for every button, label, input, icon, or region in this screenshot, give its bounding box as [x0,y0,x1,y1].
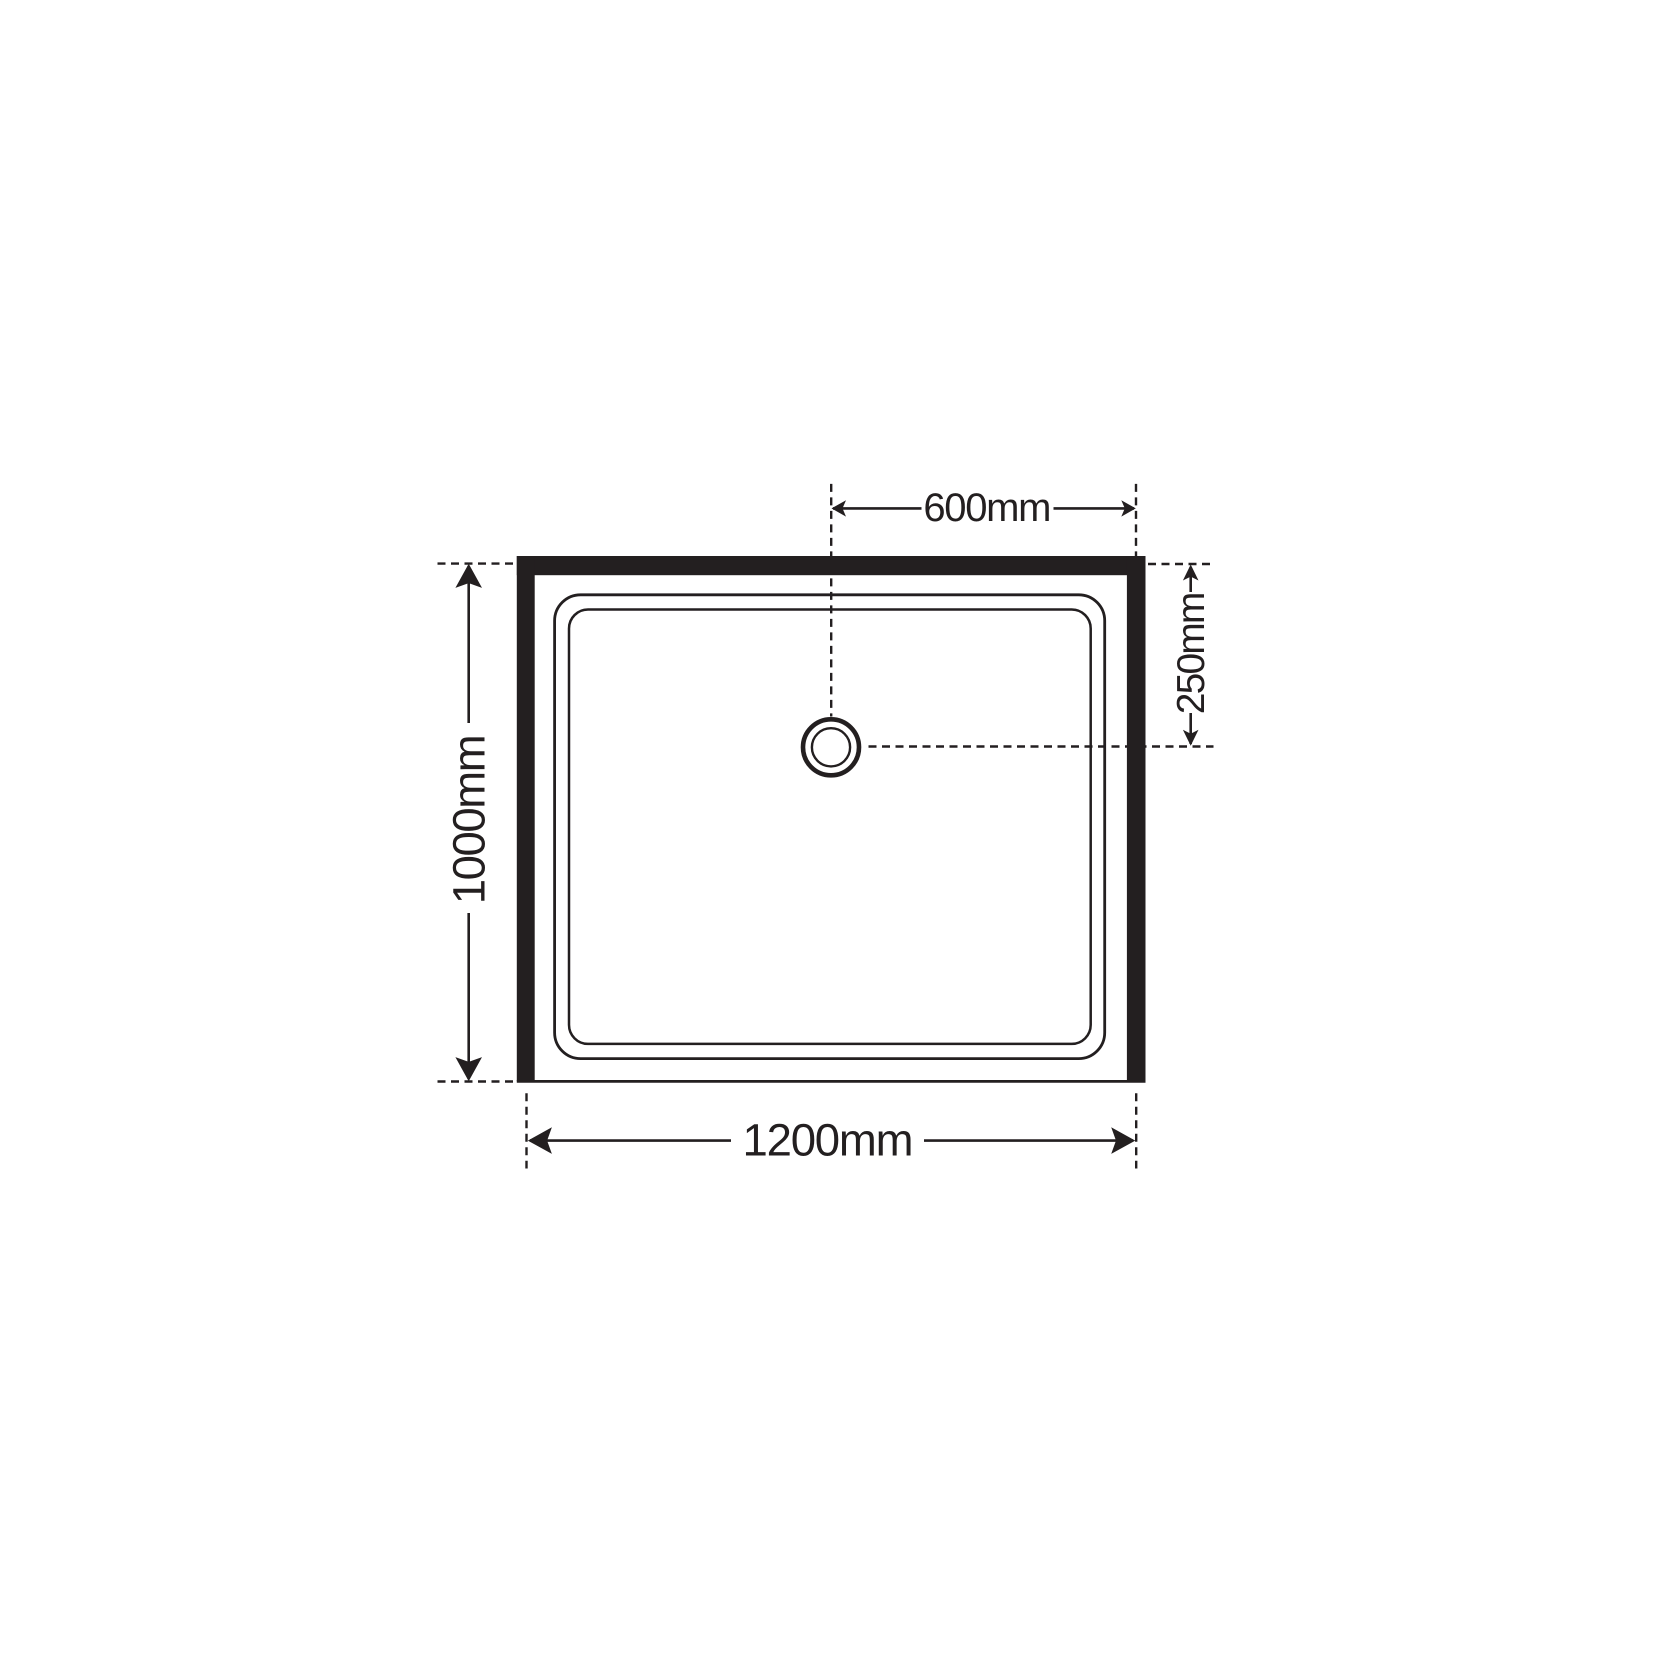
svg-text:600mm: 600mm [923,486,1051,530]
svg-text:1200mm: 1200mm [743,1115,914,1166]
svg-text:1000mm: 1000mm [443,734,494,904]
svg-text:250mm: 250mm [1170,592,1213,715]
